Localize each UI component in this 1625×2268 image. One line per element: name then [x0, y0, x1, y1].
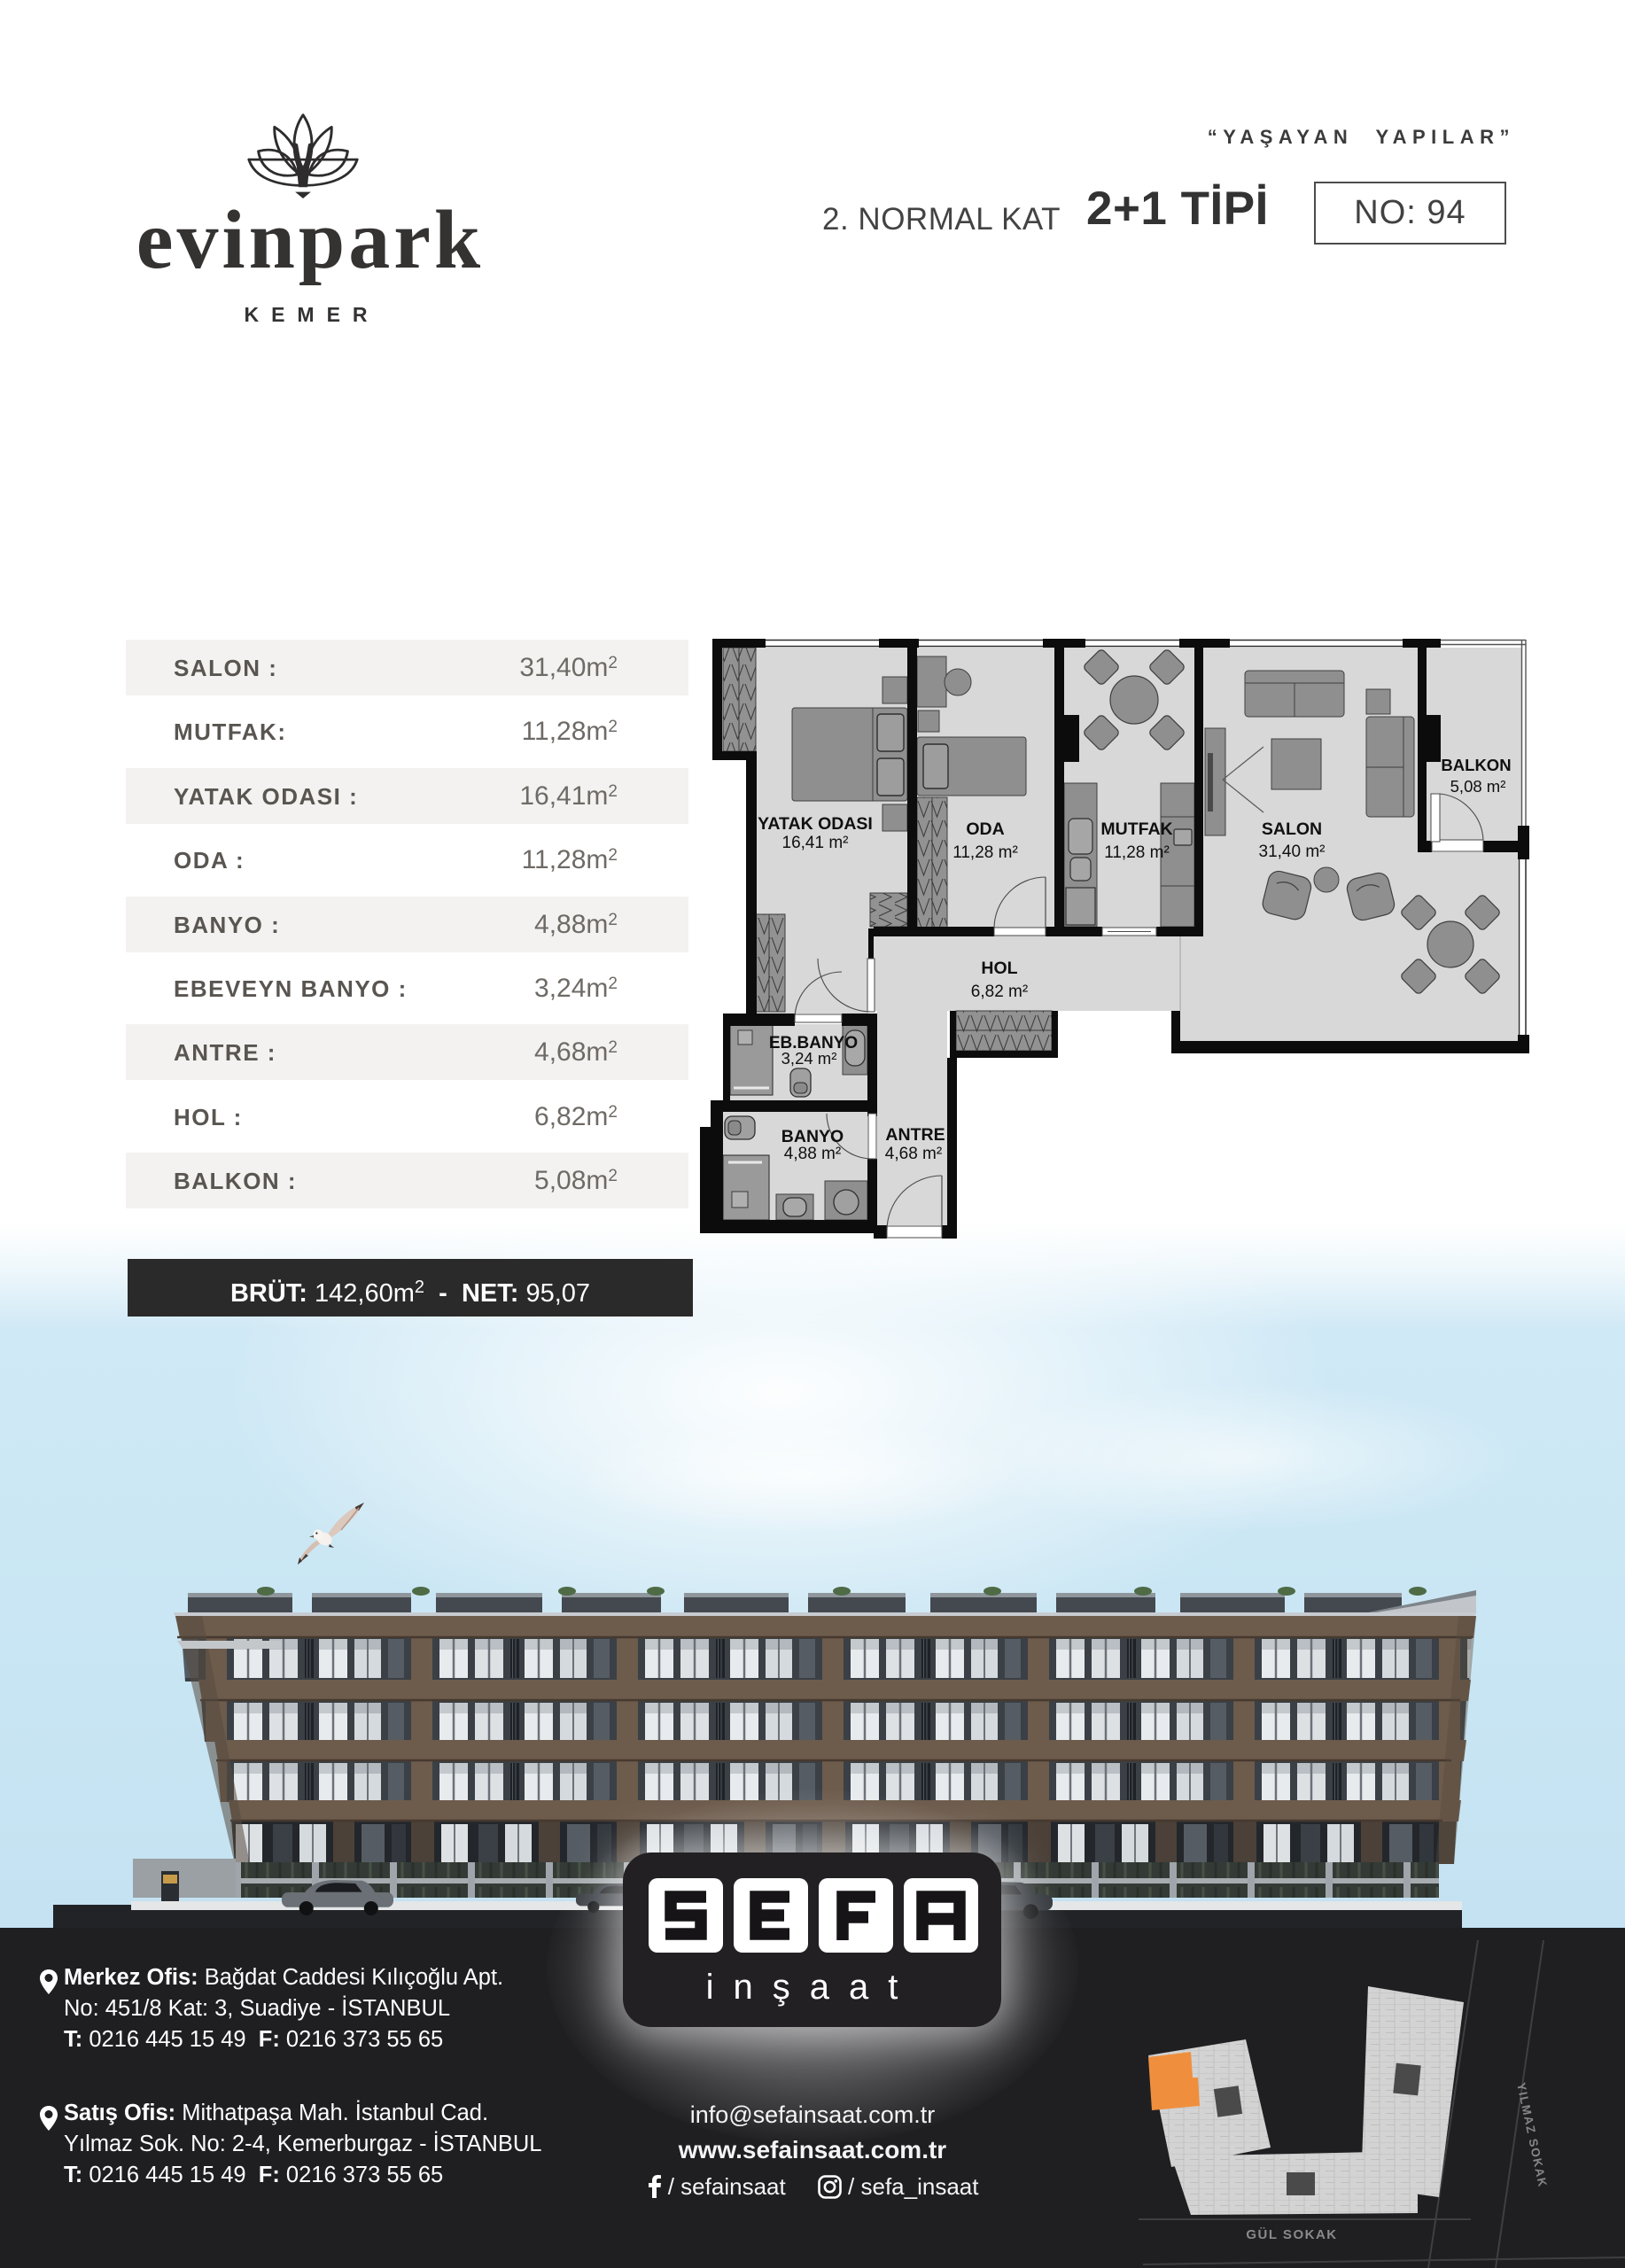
svg-text:4,88 m²: 4,88 m² [784, 1145, 841, 1163]
svg-text:SALON: SALON [1262, 819, 1322, 839]
svg-text:GÜL SOKAK: GÜL SOKAK [1246, 2227, 1337, 2242]
svg-text:YILMAZ SOKAK: YILMAZ SOKAK [1514, 2082, 1550, 2189]
svg-text:5,08 m²: 5,08 m² [1450, 777, 1506, 796]
svg-text:31,40 m²: 31,40 m² [1259, 843, 1326, 861]
svg-text:ODA: ODA [966, 819, 1004, 839]
svg-text:16,41 m²: 16,41 m² [782, 834, 849, 852]
svg-text:4,68 m²: 4,68 m² [885, 1145, 942, 1163]
svg-text:inşaat: inşaat [706, 1968, 918, 2007]
svg-text:3,24 m²: 3,24 m² [781, 1049, 837, 1068]
svg-text:BANYO: BANYO [781, 1127, 844, 1146]
svg-text:11,28 m²: 11,28 m² [952, 843, 1018, 862]
svg-text:11,28 m²: 11,28 m² [1104, 843, 1170, 862]
svg-text:ANTRE: ANTRE [885, 1125, 945, 1145]
svg-text:6,82 m²: 6,82 m² [971, 983, 1028, 1001]
svg-text:BALKON: BALKON [1441, 756, 1511, 774]
svg-text:HOL: HOL [981, 959, 1017, 978]
svg-text:MUTFAK: MUTFAK [1100, 819, 1172, 839]
svg-text:YATAK ODASI: YATAK ODASI [758, 814, 873, 834]
